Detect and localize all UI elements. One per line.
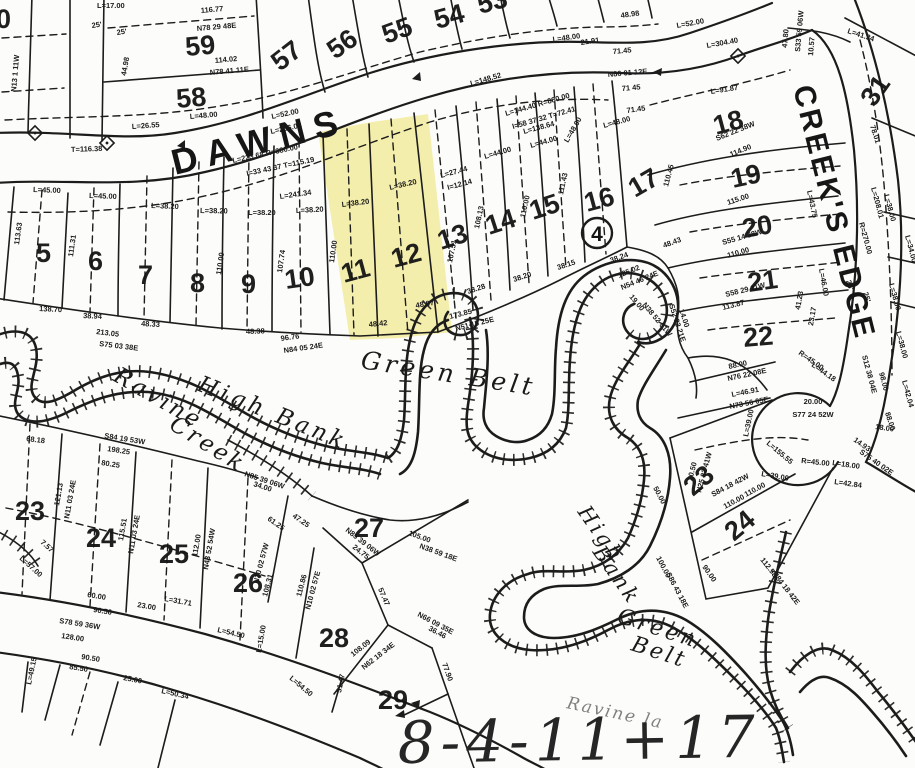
- plat-map-scan: 4 L=17.00 25' 25' N13 1 11W 44.98 116.77…: [0, 0, 915, 768]
- dim-label: 20.00: [804, 397, 823, 406]
- lot-number: 6: [88, 246, 103, 276]
- dim-label: L=38.20: [151, 201, 179, 211]
- dim-label: 38.94: [83, 311, 103, 321]
- dim-label: 25': [91, 20, 102, 30]
- dim-label: L=38.20: [200, 206, 228, 215]
- dim-label: 10.57: [806, 37, 817, 56]
- lot-number: 21: [746, 264, 780, 298]
- lot-number: 23: [15, 496, 45, 526]
- dim-label: 48.33: [141, 319, 160, 329]
- handwritten-note: 8-4-11+17: [397, 703, 761, 768]
- dim-label: S77 24 52W: [792, 410, 834, 419]
- dim-label: L=38.20: [248, 208, 276, 217]
- dim-label: L=45.00: [33, 185, 61, 195]
- dim-label: L=17.00: [97, 1, 125, 10]
- dim-label: 48.38: [246, 326, 265, 336]
- dim-label: 47.80: [780, 29, 791, 48]
- lot-number: 27: [354, 513, 384, 543]
- lot-number: 9: [241, 269, 256, 299]
- dim-label: 138.70: [39, 304, 62, 314]
- lot-number: 26: [233, 568, 263, 598]
- lot-number: 20: [740, 209, 775, 244]
- lot-number: 8: [190, 268, 205, 298]
- lot-number: 24: [86, 523, 116, 553]
- dim-label: 25': [116, 27, 127, 37]
- lot-number: 22: [742, 320, 775, 353]
- plat-map-svg: 4 L=17.00 25' 25' N13 1 11W 44.98 116.77…: [0, 0, 915, 768]
- lot-number: 5: [36, 238, 51, 268]
- dim-label: 71 45: [621, 82, 640, 93]
- lot-number: 58: [175, 81, 208, 114]
- lot-number-fragment: 0: [0, 4, 11, 34]
- lot-number: 19: [728, 158, 764, 194]
- dim-label: L=45.00: [89, 191, 117, 201]
- lot-number: 28: [319, 623, 349, 653]
- dim-label: L=38.20: [296, 205, 324, 215]
- lot-number: 59: [184, 29, 217, 62]
- lot-number: 7: [138, 260, 153, 290]
- lot-number: 25: [159, 539, 189, 569]
- circle-marker-number: 4: [591, 223, 603, 246]
- dim-label: 71.45: [612, 45, 631, 56]
- dim-label: T=116.38: [71, 144, 103, 154]
- lot-number: 10: [283, 261, 317, 295]
